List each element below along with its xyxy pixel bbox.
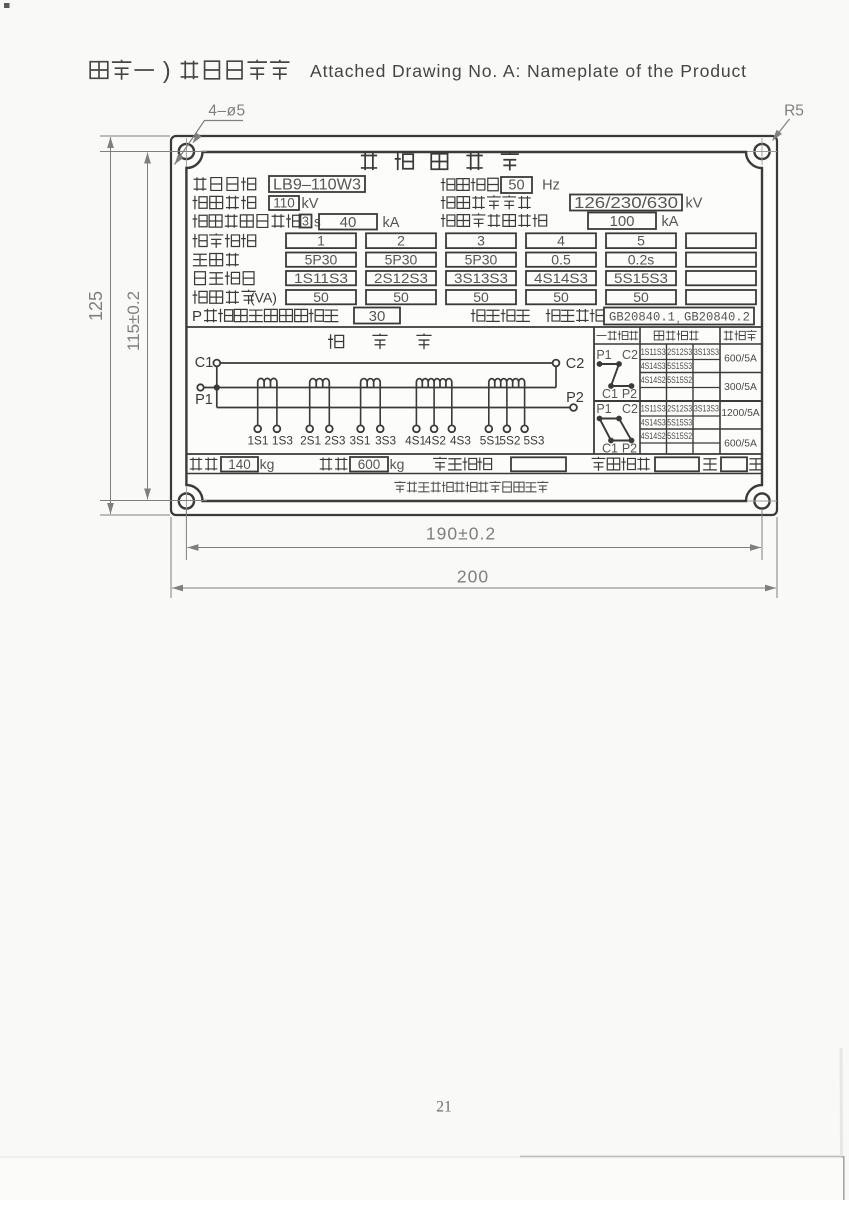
svg-text:5S15S3: 5S15S3: [614, 270, 668, 286]
svg-text:5S15S2: 5S15S2: [667, 375, 692, 386]
svg-text:s: s: [314, 215, 321, 230]
svg-text:2S3: 2S3: [325, 433, 346, 447]
svg-text:2: 2: [397, 233, 405, 249]
svg-text:3: 3: [477, 233, 485, 249]
svg-text:3S13S3: 3S13S3: [694, 347, 719, 358]
svg-text:5S1: 5S1: [480, 433, 501, 447]
svg-text:4–ø5: 4–ø5: [208, 102, 245, 119]
svg-text:P1: P1: [596, 402, 611, 416]
svg-text:5: 5: [637, 233, 645, 249]
svg-text:50: 50: [313, 289, 329, 305]
svg-text:5P30: 5P30: [305, 252, 338, 268]
svg-text:100: 100: [609, 213, 634, 230]
svg-text:4S14S2: 4S14S2: [641, 431, 666, 442]
svg-text:P: P: [192, 308, 202, 325]
svg-text:1S11S3: 1S11S3: [294, 270, 348, 286]
svg-text:kg: kg: [390, 456, 405, 472]
svg-text:5S2: 5S2: [499, 433, 520, 447]
svg-text:5P30: 5P30: [465, 252, 498, 268]
svg-text:2S12S3: 2S12S3: [667, 347, 692, 358]
svg-text:P2: P2: [622, 387, 637, 401]
svg-text:600/5A: 600/5A: [724, 354, 757, 365]
svg-text:): ): [163, 57, 171, 83]
svg-text:,: ,: [676, 311, 679, 325]
svg-text:P1: P1: [596, 348, 611, 362]
svg-text:P2: P2: [566, 390, 584, 406]
svg-text:50: 50: [508, 178, 524, 194]
svg-text:P1: P1: [195, 392, 213, 408]
svg-text:C1: C1: [602, 387, 618, 401]
svg-text:R5: R5: [784, 102, 804, 119]
svg-text:LB9–110W3: LB9–110W3: [273, 177, 361, 194]
svg-text:126/230/630: 126/230/630: [574, 195, 678, 212]
svg-text:kA: kA: [662, 214, 679, 230]
svg-text:1S3: 1S3: [272, 433, 293, 447]
svg-text:600/5A: 600/5A: [724, 439, 757, 450]
svg-text:GB20840.2: GB20840.2: [684, 309, 750, 324]
svg-text:4S14S3: 4S14S3: [534, 270, 588, 286]
svg-text:5S15S3: 5S15S3: [667, 361, 692, 372]
svg-text:40: 40: [340, 214, 357, 231]
svg-text:50: 50: [633, 289, 649, 305]
svg-text:kV: kV: [686, 196, 703, 212]
svg-text:1S11S3: 1S11S3: [641, 404, 666, 415]
svg-text:4S2: 4S2: [425, 433, 446, 447]
svg-text:kg: kg: [260, 456, 275, 472]
svg-text:200: 200: [457, 567, 489, 587]
svg-text:4S1: 4S1: [405, 433, 426, 447]
svg-text:5S15S2: 5S15S2: [667, 431, 692, 442]
svg-text:140: 140: [228, 457, 251, 472]
svg-text:2S12S3: 2S12S3: [374, 270, 428, 286]
svg-text:5P30: 5P30: [385, 252, 418, 268]
svg-text:125: 125: [86, 291, 106, 321]
svg-text:3S13S3: 3S13S3: [694, 404, 719, 415]
svg-text:50: 50: [393, 289, 409, 305]
svg-text:(VA): (VA): [250, 290, 277, 306]
svg-text:115±0.2: 115±0.2: [124, 291, 143, 351]
svg-text:300/5A: 300/5A: [724, 382, 757, 393]
svg-text:Attached Drawing No. A: Namepl: Attached Drawing No. A: Nameplate of the…: [310, 61, 747, 81]
svg-text:3S3: 3S3: [375, 433, 396, 447]
svg-text:1S11S3: 1S11S3: [641, 347, 666, 358]
svg-text:3S13S3: 3S13S3: [454, 270, 508, 286]
svg-text:0.2s: 0.2s: [628, 252, 654, 268]
svg-text:21: 21: [436, 1098, 452, 1115]
svg-text:4S14S3: 4S14S3: [641, 418, 666, 429]
svg-text:5S15S3: 5S15S3: [667, 418, 692, 429]
svg-text:190±0.2: 190±0.2: [426, 524, 496, 544]
svg-text:4: 4: [557, 233, 565, 249]
svg-text:0.5: 0.5: [551, 252, 571, 268]
svg-text:3S1: 3S1: [350, 433, 371, 447]
svg-text:C2: C2: [622, 402, 638, 416]
svg-text:kA: kA: [383, 215, 400, 231]
svg-text:1: 1: [317, 233, 325, 249]
svg-text:600: 600: [358, 457, 381, 472]
svg-text:GB20840.1: GB20840.1: [609, 309, 675, 324]
svg-text:3: 3: [302, 214, 309, 228]
svg-text:2S12S3: 2S12S3: [667, 404, 692, 415]
svg-text:kV: kV: [302, 196, 319, 212]
svg-text:2S1: 2S1: [300, 433, 321, 447]
svg-text:30: 30: [369, 308, 386, 325]
svg-text:1200/5A: 1200/5A: [721, 408, 759, 419]
svg-text:4S14S3: 4S14S3: [641, 361, 666, 372]
svg-text:4S3: 4S3: [450, 433, 471, 447]
svg-text:50: 50: [473, 289, 489, 305]
svg-text:1S1: 1S1: [248, 433, 269, 447]
svg-text:4S14S2: 4S14S2: [641, 375, 666, 386]
svg-text:Hz: Hz: [542, 178, 560, 194]
svg-text:5S3: 5S3: [524, 433, 545, 447]
svg-text:50: 50: [553, 289, 569, 305]
svg-text:C1: C1: [195, 355, 214, 371]
svg-text:C2: C2: [566, 356, 585, 372]
svg-text:C2: C2: [622, 348, 638, 362]
svg-text:110: 110: [273, 196, 295, 211]
